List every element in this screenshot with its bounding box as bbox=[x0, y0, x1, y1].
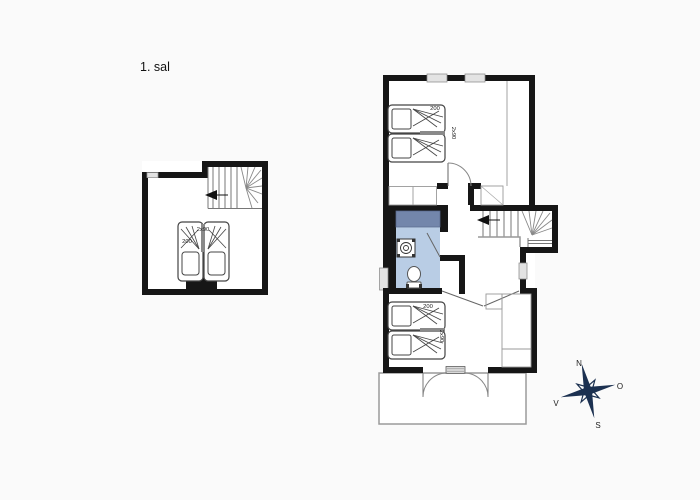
left-floorplan: 2x90 200 bbox=[142, 161, 268, 295]
bed-width-label: 2x90 bbox=[450, 127, 456, 140]
pillow bbox=[392, 109, 411, 129]
bed-divider bbox=[420, 131, 445, 135]
pillow bbox=[392, 138, 411, 158]
compass-east-label: O bbox=[617, 382, 623, 391]
terrace bbox=[379, 373, 526, 424]
window bbox=[519, 263, 527, 279]
compass-north-label: N bbox=[576, 359, 582, 368]
right-floorplan: 200 2x90 200 2x90 bbox=[379, 74, 558, 424]
bed-length-label: 200 bbox=[430, 106, 440, 112]
shower bbox=[396, 211, 440, 227]
pillow bbox=[392, 335, 411, 355]
page-title: 1. sal bbox=[140, 60, 170, 74]
bed-width-label: 2x90 bbox=[438, 330, 444, 343]
window bbox=[380, 268, 389, 290]
bathroom bbox=[396, 211, 440, 288]
bed-length-label: 200 bbox=[423, 304, 433, 310]
sink-icon bbox=[397, 239, 415, 257]
floorplan-canvas: 1. sal bbox=[0, 0, 700, 500]
compass-south-label: S bbox=[595, 421, 600, 430]
compass-rose: N O V S bbox=[553, 357, 623, 430]
pillow bbox=[182, 252, 199, 275]
bed-group-top bbox=[388, 105, 445, 162]
bed-width-label: 2x90 bbox=[197, 227, 210, 233]
door-threshold bbox=[446, 367, 465, 374]
bed-group-bottom bbox=[388, 302, 445, 359]
pillow bbox=[208, 252, 225, 275]
window bbox=[427, 74, 447, 82]
bed-length-label: 200 bbox=[182, 239, 192, 245]
pillow bbox=[392, 306, 411, 326]
window bbox=[147, 173, 158, 178]
compass-west-label: V bbox=[553, 399, 559, 408]
toilet-icon bbox=[406, 267, 422, 289]
window bbox=[465, 74, 485, 82]
